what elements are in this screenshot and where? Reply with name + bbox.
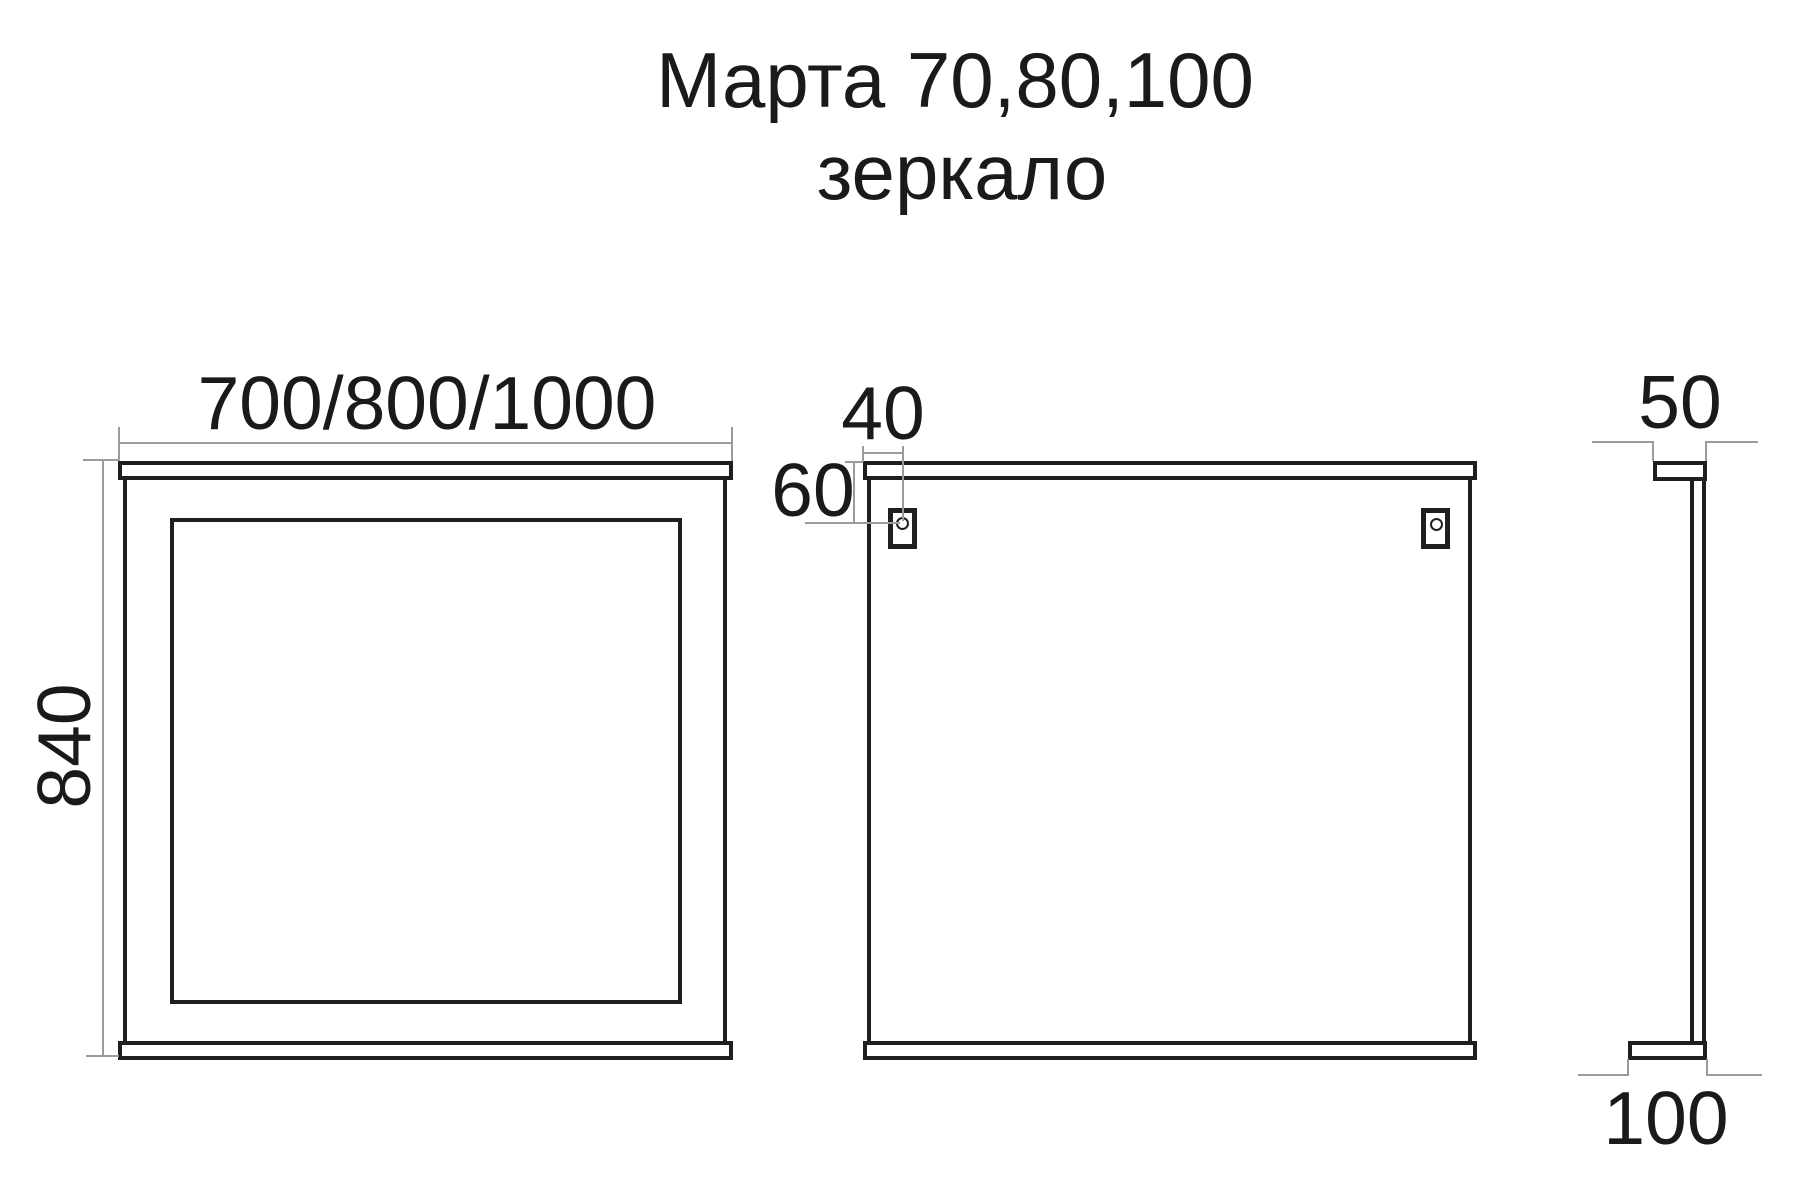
technical-drawing-canvas: Марта 70,80,100 зеркало 700/800/1000 840… [0,0,1800,1202]
dim-bracket-horizontal-label: 40 [783,370,983,456]
front-view-mirror-glass [170,518,682,1004]
dim-side-bottom-label: 100 [1566,1075,1766,1161]
dim-front-height-ext-bottom [86,1055,119,1057]
product-subtitle: зеркало [462,126,1462,218]
front-view-bottom-cap [118,1041,733,1060]
dim-side-top-label: 50 [1580,359,1780,445]
dim-front-width-ext-left [118,427,120,461]
dim-side-bottom-ext-left [1627,1059,1629,1076]
dim-bracket-vertical-label: 60 [713,447,913,533]
side-view-top-cap [1653,461,1707,481]
back-view-bottom-cap [863,1041,1477,1060]
dim-side-bottom-ext-right [1706,1059,1708,1076]
front-view-top-cap [118,461,733,480]
dim-front-width-label: 700/800/1000 [127,360,727,446]
side-view-bottom-cap [1628,1041,1707,1060]
product-title: Марта 70,80,100 [455,34,1455,126]
back-view-panel [867,470,1472,1050]
back-view-top-cap [863,461,1477,480]
side-view-panel [1690,470,1706,1050]
dim-front-height-label: 840 [21,646,107,846]
dim-front-height-ext-top [83,459,119,461]
bracket-screw-hole-right [1430,518,1443,531]
